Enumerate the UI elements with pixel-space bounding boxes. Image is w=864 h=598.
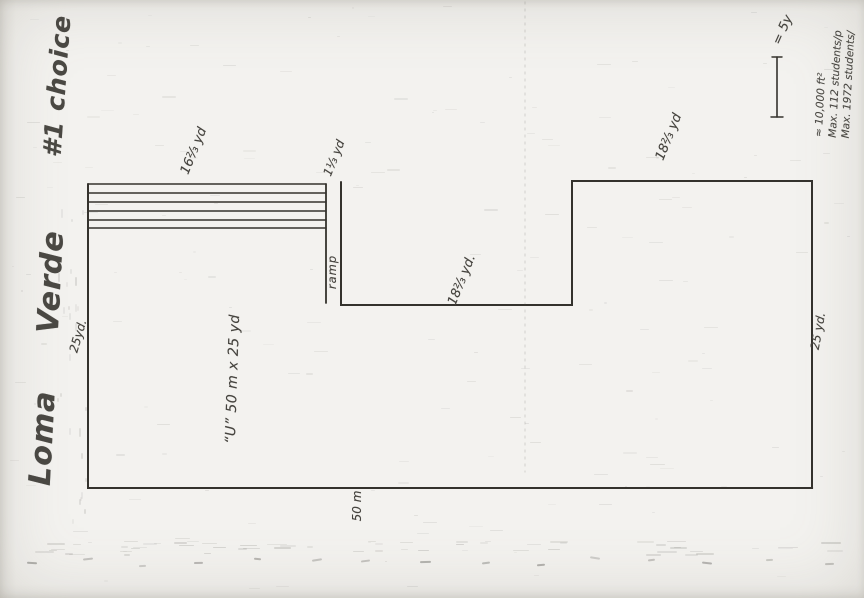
scanned-site-plan-page: Loma Verde #1 choice = 5y ≈ 10,000 ft² M… <box>0 0 864 598</box>
site-plan-outline <box>0 0 864 598</box>
capacity-notes: ≈ 10,000 ft² Max. 112 students/p Max. 19… <box>813 29 859 139</box>
ramp-label: ramp <box>325 255 339 289</box>
pool-outline-path <box>88 181 812 488</box>
bottom-dimension-label: 50 m <box>350 491 364 522</box>
scale-bar <box>771 57 783 117</box>
